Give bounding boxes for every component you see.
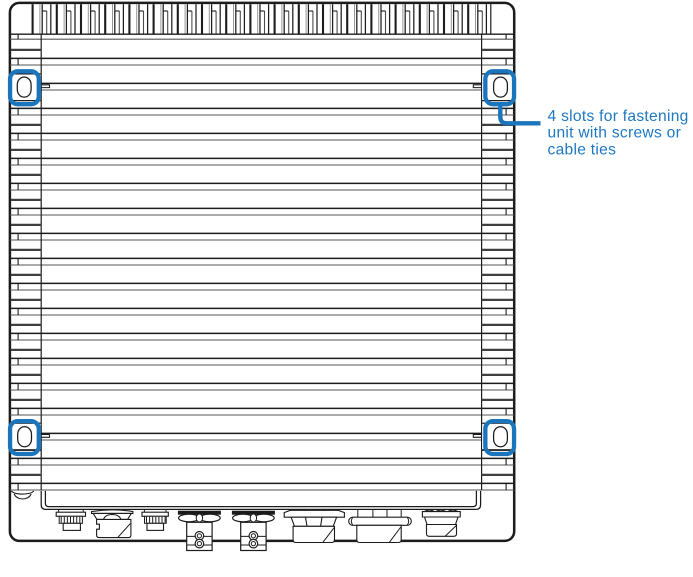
svg-text:4 slots for fastening: 4 slots for fastening xyxy=(548,108,689,125)
svg-text:cable ties: cable ties xyxy=(548,141,617,158)
svg-text:unit with screws or: unit with screws or xyxy=(548,125,682,142)
